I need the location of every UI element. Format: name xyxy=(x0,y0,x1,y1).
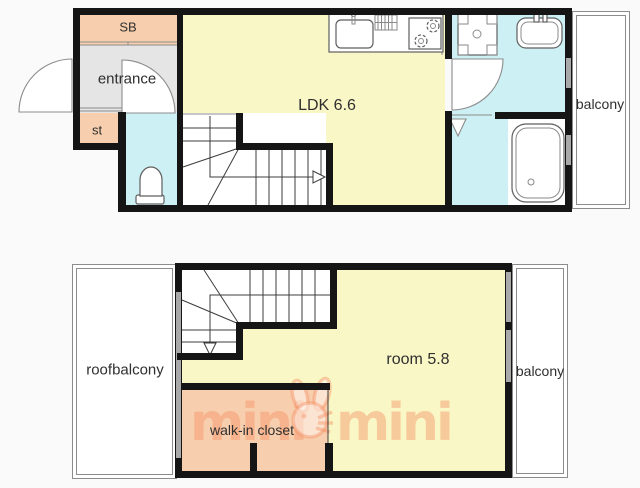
wall xyxy=(73,8,572,15)
floor2-stairwell-fill-a xyxy=(182,270,337,329)
label-walk-in-closet: walk-in closet xyxy=(210,422,294,438)
wall xyxy=(445,8,452,59)
wall xyxy=(330,263,337,329)
wall xyxy=(236,143,333,150)
label-balcony-f2: balcony xyxy=(516,363,564,379)
label-roofbalcony: roofbalcony xyxy=(86,362,164,379)
window-mark xyxy=(566,58,571,88)
rabbit-eye xyxy=(302,414,307,419)
wall xyxy=(565,8,572,205)
front-door-swing-icon xyxy=(19,59,72,112)
floor1-stairwell-fill xyxy=(183,113,326,205)
wall xyxy=(182,383,330,390)
wall xyxy=(445,111,452,205)
wall xyxy=(326,150,333,205)
bathtub-icon xyxy=(512,124,564,202)
wall xyxy=(325,443,333,478)
label-entrance: entrance xyxy=(98,71,156,88)
wall xyxy=(236,322,337,329)
floorplan-page: mini mini xyxy=(0,0,640,488)
stove-icon xyxy=(409,18,441,49)
label-sb: SB xyxy=(119,20,136,35)
wall xyxy=(177,8,183,205)
watermark-text-2: mini xyxy=(336,393,451,453)
wall xyxy=(118,205,572,212)
label-st: st xyxy=(92,123,102,138)
wall xyxy=(177,353,243,360)
window-mark xyxy=(506,330,511,382)
wall xyxy=(250,443,257,478)
floorplan-drawing: mini mini xyxy=(0,0,640,488)
wall xyxy=(73,8,80,150)
wall xyxy=(495,112,572,119)
window-mark xyxy=(176,292,181,458)
washing-machine-icon xyxy=(458,14,497,55)
window-mark xyxy=(566,135,571,165)
label-balcony-f1: balcony xyxy=(576,96,624,112)
window-mark xyxy=(506,272,511,322)
label-room: room 5.8 xyxy=(386,351,449,369)
wall xyxy=(177,263,512,270)
wall xyxy=(118,112,126,205)
wall xyxy=(177,471,512,478)
label-ldk: LDK 6.6 xyxy=(298,97,356,115)
kitchen-counter xyxy=(329,12,443,53)
